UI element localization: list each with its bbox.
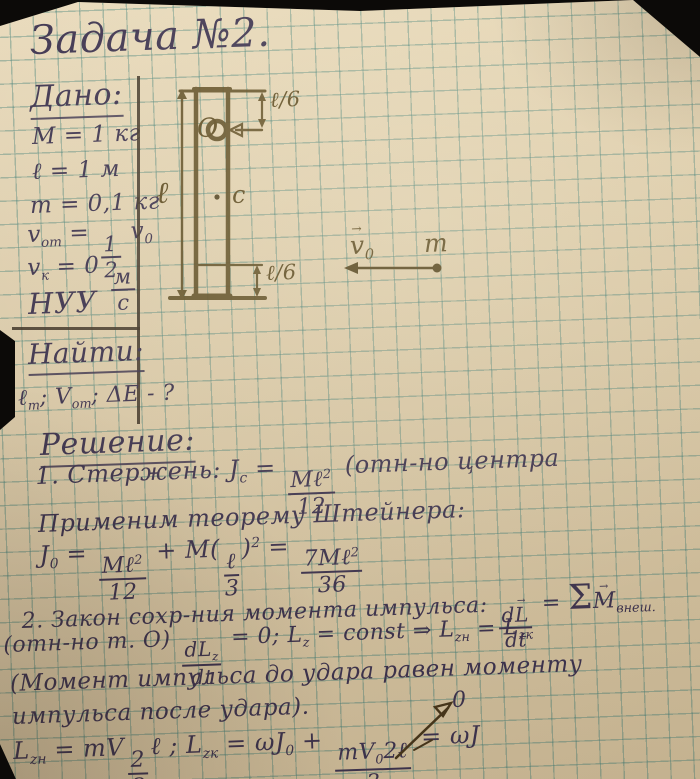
segment-top-label: ℓ/6 (270, 87, 302, 113)
velocity-label: v0 (349, 230, 374, 264)
sketch-origin-label: 0 (452, 688, 467, 713)
rod-length-label: ℓ (155, 176, 169, 211)
given-item: ℓ = 1 м (32, 156, 121, 185)
mass-label: m (423, 228, 448, 258)
find-box-top-border (12, 327, 140, 330)
given-item: НУУ (27, 285, 97, 321)
find-value: ℓm; Vот; ΔE - ? (17, 380, 175, 415)
given-item: M = 1 кг (32, 120, 142, 150)
given-item: m = 0,1 кг (30, 188, 161, 219)
rod-diagram (150, 76, 490, 321)
notebook-page: Задача №2. Дано: M = 1 кг ℓ = 1 м m = 0,… (0, 0, 700, 779)
find-label: Найти: (27, 334, 144, 376)
page-title: Задача №2. (29, 10, 271, 67)
given-label: Дано: (29, 77, 123, 120)
notebook-photo: Задача №2. Дано: M = 1 кг ℓ = 1 м m = 0,… (0, 0, 700, 779)
center-label: c (232, 181, 247, 209)
pivot-label: O (196, 113, 219, 144)
segment-bottom-label: ℓ/6 (266, 260, 298, 286)
axis-sketch-arrow (388, 690, 483, 775)
